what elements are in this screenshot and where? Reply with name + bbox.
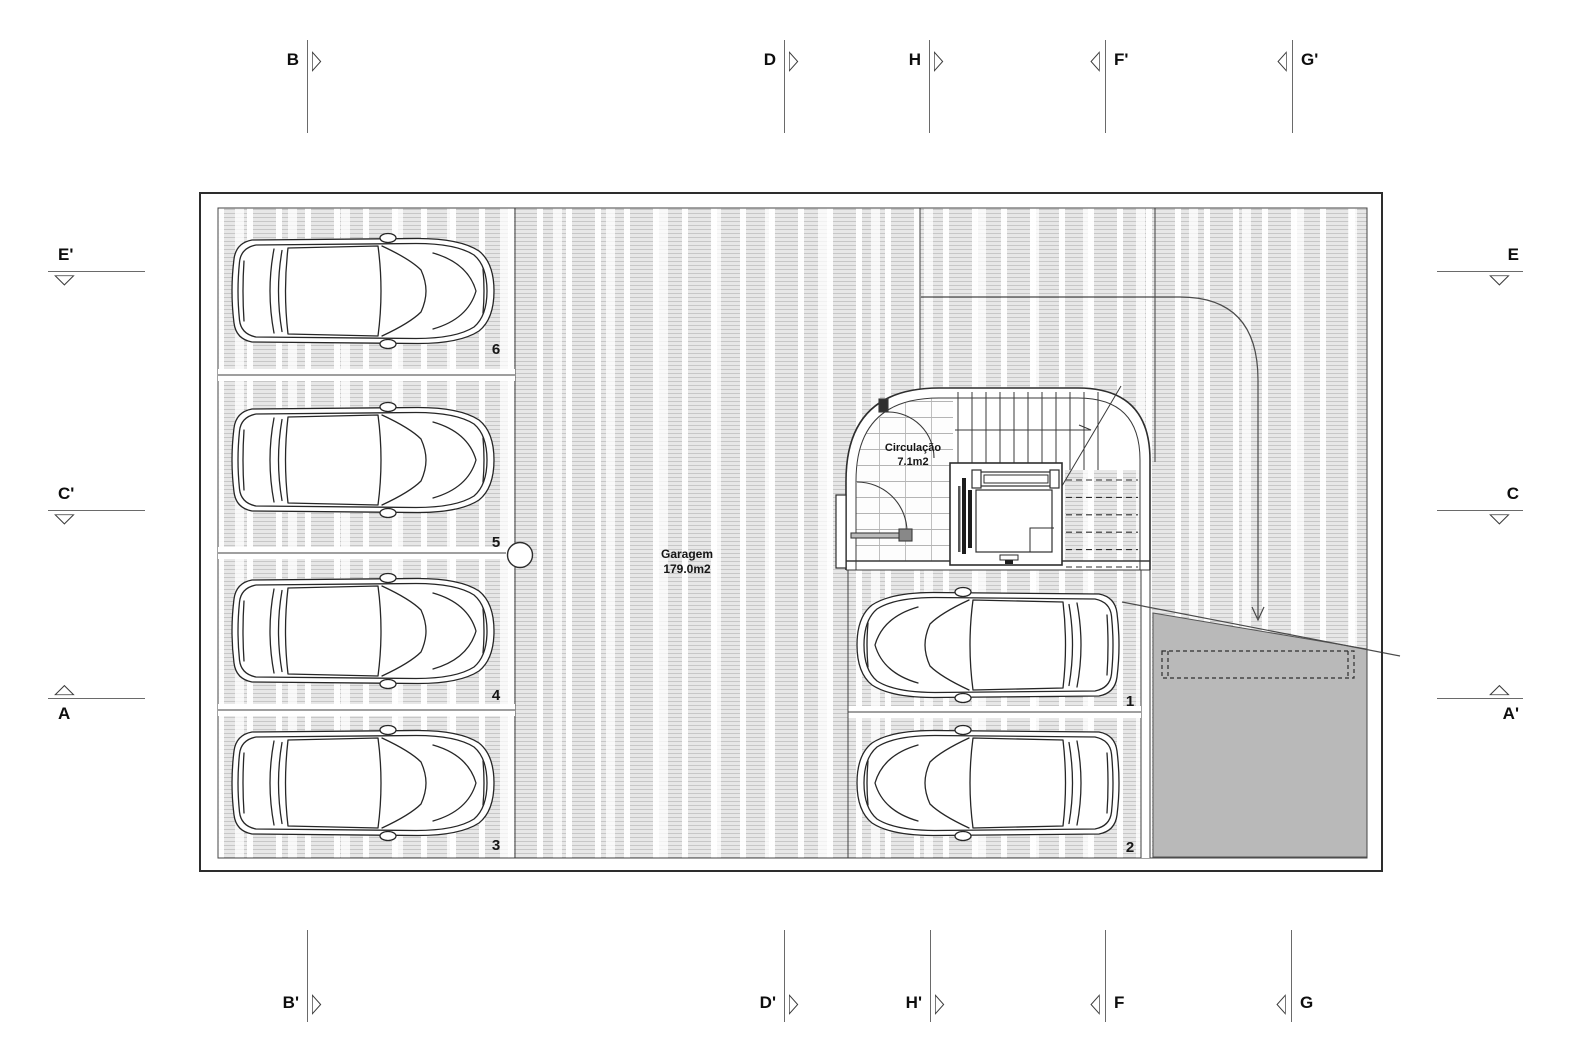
section-line [784, 930, 785, 1022]
section-line [930, 930, 931, 1022]
section-label: A [58, 704, 70, 724]
ramp-slab [1153, 613, 1367, 857]
stall-number-2: 2 [1126, 839, 1134, 856]
section-label: D' [760, 993, 776, 1013]
section-label: E [1508, 245, 1519, 265]
triangle-left-icon: ◁ [1091, 990, 1100, 1017]
door-lower [851, 482, 912, 541]
car-top-view [857, 588, 1119, 703]
circulation-name-label: Circulação [885, 442, 942, 454]
section-label: G [1300, 993, 1313, 1013]
car-top-view [857, 726, 1119, 841]
triangle-up-icon: △ [1489, 683, 1510, 697]
triangle-right-icon: ▷ [789, 47, 798, 74]
car-top-view [232, 403, 494, 518]
section-line [784, 40, 785, 133]
car-top-view [232, 574, 494, 689]
section-label: C [1507, 484, 1519, 504]
stall-number-1: 1 [1126, 693, 1134, 710]
section-line [1291, 930, 1292, 1022]
triangle-right-icon: ▷ [934, 47, 943, 74]
section-line [1437, 698, 1523, 699]
triangle-left-icon: ◁ [1278, 47, 1287, 74]
section-line [1292, 40, 1293, 133]
section-line [48, 698, 145, 699]
section-line [929, 40, 930, 133]
section-label: D [764, 50, 776, 70]
section-label: F [1114, 993, 1124, 1013]
section-line [307, 930, 308, 1022]
stall-number-4: 4 [492, 687, 501, 704]
section-label: C' [58, 484, 74, 504]
stall-number-6: 6 [492, 341, 500, 358]
stall-number-3: 3 [492, 837, 500, 854]
car-top-view [232, 726, 494, 841]
triangle-down-icon: ▽ [54, 273, 75, 287]
stair-core [836, 386, 1150, 570]
section-line [1437, 271, 1523, 272]
section-label: B' [283, 993, 299, 1013]
section-label: G' [1301, 50, 1318, 70]
section-line [1105, 930, 1106, 1022]
triangle-right-icon: ▷ [935, 990, 944, 1017]
section-label: F' [1114, 50, 1128, 70]
section-line [307, 40, 308, 133]
section-label: B [287, 50, 299, 70]
triangle-down-icon: ▽ [1489, 512, 1510, 526]
stair-above-dashed [1066, 480, 1138, 567]
stall-number-5: 5 [492, 534, 500, 551]
floor-plan-canvas: Garagem 179.0m2 Circulação 7.1m2 6 5 4 3… [0, 0, 1572, 1058]
section-line [1105, 40, 1106, 133]
triangle-right-icon: ▷ [312, 990, 321, 1017]
plan-drawing: Garagem 179.0m2 Circulação 7.1m2 6 5 4 3… [0, 0, 1572, 1058]
garage-area-label: 179.0m2 [663, 562, 711, 576]
column-circle [508, 543, 533, 568]
triangle-left-icon: ◁ [1091, 47, 1100, 74]
triangle-down-icon: ▽ [54, 512, 75, 526]
garage-name-label: Garagem [661, 547, 713, 561]
triangle-up-icon: △ [54, 683, 75, 697]
ramp-area [1153, 613, 1367, 857]
section-label: A' [1503, 704, 1519, 724]
circulation-area-label: 7.1m2 [897, 456, 928, 468]
triangle-right-icon: ▷ [312, 47, 321, 74]
car-top-view [232, 234, 494, 349]
section-label: H [909, 50, 921, 70]
section-label: H' [906, 993, 922, 1013]
triangle-down-icon: ▽ [1489, 273, 1510, 287]
triangle-left-icon: ◁ [1277, 990, 1286, 1017]
section-line [1437, 510, 1523, 511]
elevator [950, 463, 1062, 565]
triangle-right-icon: ▷ [789, 990, 798, 1017]
section-label: E' [58, 245, 73, 265]
room-labels: Garagem 179.0m2 Circulação 7.1m2 [661, 442, 941, 576]
